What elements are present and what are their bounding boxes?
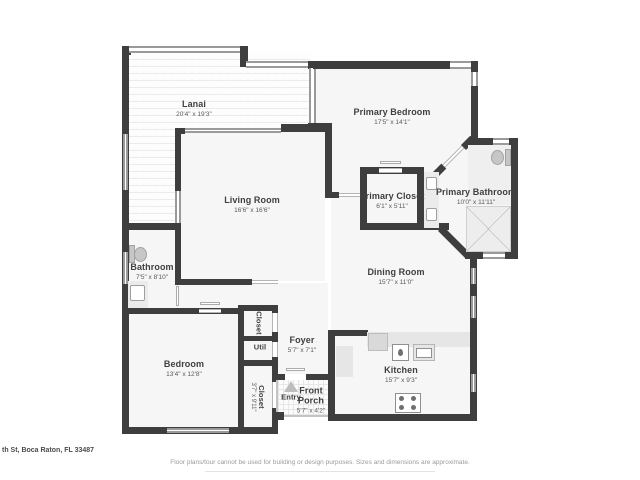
window <box>471 72 478 86</box>
window <box>471 296 476 318</box>
room-label-util: Util <box>254 342 266 351</box>
porch-edge <box>276 380 278 414</box>
property-address: th St, Boca Raton, FL 33487 <box>2 447 94 454</box>
wall <box>122 308 244 314</box>
room-label-kitchen: Kitchen 15'7" x 9'3" <box>384 365 418 385</box>
wall <box>244 336 272 341</box>
room-dims: 17'5" x 14'1" <box>353 119 430 127</box>
sink-icon <box>130 285 145 301</box>
room-dims: 7'5" x 8'10" <box>130 274 173 282</box>
screen-wall <box>246 61 312 68</box>
burner-icon <box>399 405 404 410</box>
room-name: Bathroom <box>130 262 173 273</box>
room-dims: 20'4" x 19'3" <box>176 111 212 119</box>
kitchen-sink-icon <box>416 348 432 358</box>
room-label-bedroom-closet: Closet 3'7" x 9'11" <box>248 382 266 411</box>
room-name: Closet <box>254 311 263 335</box>
room-label-foyer: Foyer 5'7" x 7'1" <box>288 335 316 355</box>
door-leaf <box>200 302 220 305</box>
window <box>471 374 476 392</box>
wall <box>175 128 185 134</box>
burner-icon <box>411 396 416 401</box>
room-dims: 13'4" x 12'8" <box>164 371 204 379</box>
window <box>483 252 505 259</box>
room-label-lanai: Lanai 20'4" x 19'3" <box>176 99 212 119</box>
burner-icon <box>399 396 404 401</box>
door-opening <box>379 168 402 173</box>
room-dims: 16'6" x 16'6" <box>224 207 280 215</box>
divider <box>205 471 435 472</box>
window <box>450 61 472 69</box>
toilet-icon <box>505 149 511 166</box>
window <box>123 134 128 190</box>
room-dims: 10'0" x 11'11" <box>436 199 516 207</box>
room-name: Living Room <box>224 195 280 206</box>
lanai-tile-floor-left <box>129 53 175 223</box>
shower-icon <box>466 206 511 252</box>
door-opening <box>199 309 221 313</box>
fridge-icon <box>368 333 388 351</box>
door-leaf <box>176 286 179 306</box>
room-dims: 5'7" x 7'1" <box>288 347 316 355</box>
room-label-dining-room: Dining Room 15'7" x 11'0" <box>367 267 424 287</box>
room-name: Dining Room <box>367 267 424 278</box>
slider-opening <box>185 128 281 133</box>
wall <box>175 279 252 285</box>
front-door-leaf <box>286 368 305 371</box>
room-name: Primary Bathroom <box>436 187 516 198</box>
door-opening <box>339 193 360 197</box>
window <box>471 268 476 284</box>
door-opening <box>272 313 278 332</box>
room-name: Foyer <box>288 335 316 346</box>
room-label-primary-bedroom: Primary Bedroom 17'5" x 14'1" <box>353 107 430 127</box>
door-leaf <box>380 161 401 164</box>
kitchen-counter <box>336 346 353 377</box>
room-dims: 5'7" x 4'2" <box>289 407 333 415</box>
room-name: Kitchen <box>384 365 418 376</box>
dishwasher-drop-icon <box>398 349 403 356</box>
wall <box>306 374 330 380</box>
window <box>123 252 128 284</box>
wall <box>273 374 285 380</box>
floor-plan: Lanai 20'4" x 19'3" Primary Bedroom 17'5… <box>0 0 640 480</box>
room-name: Lanai <box>176 99 212 110</box>
room-label-entry: Entry <box>281 392 301 401</box>
room-label-bedroom: Bedroom 13'4" x 12'8" <box>164 359 204 379</box>
wall <box>360 223 424 230</box>
room-dims: 3'7" x 9'11" <box>248 382 256 411</box>
window <box>175 191 181 223</box>
wall <box>238 308 244 434</box>
room-name: Bedroom <box>164 359 204 370</box>
window <box>167 428 229 433</box>
wall <box>122 223 180 230</box>
wall <box>328 414 477 421</box>
porch-post <box>276 412 284 420</box>
room-label-primary-bathroom: Primary Bathroom 10'0" x 11'11" <box>436 187 516 207</box>
room-label-living-room: Living Room 16'6" x 16'6" <box>224 195 280 215</box>
toilet-icon <box>491 150 504 165</box>
room-name: Entry <box>281 392 301 401</box>
door-opening <box>272 342 278 357</box>
sink-icon <box>426 208 437 221</box>
room-label-bathroom: Bathroom 7'5" x 8'10" <box>130 262 173 282</box>
room-name: Primary Bedroom <box>353 107 430 118</box>
cased-opening <box>252 280 278 284</box>
wall <box>325 124 332 198</box>
room-name: Primary Closet <box>360 191 425 202</box>
room-name: Util <box>254 342 266 351</box>
window <box>493 138 509 145</box>
disclaimer-text: Floor plans/tour cannot be used for buil… <box>170 459 470 466</box>
room-label-hall-closet: Closet <box>254 311 263 335</box>
screen-wall <box>129 46 242 53</box>
room-dims: 15'7" x 9'3" <box>384 377 418 385</box>
toilet-icon <box>134 247 147 262</box>
burner-icon <box>411 405 416 410</box>
room-dims: 15'7" x 11'0" <box>367 279 424 287</box>
window <box>309 68 316 125</box>
room-name: Closet <box>257 382 266 411</box>
room-dims: 6'1" x 5'11" <box>360 203 425 211</box>
dining-room-floor <box>331 198 470 330</box>
room-label-primary-closet: Primary Closet 6'1" x 5'11" <box>360 191 425 211</box>
wall <box>325 192 339 198</box>
